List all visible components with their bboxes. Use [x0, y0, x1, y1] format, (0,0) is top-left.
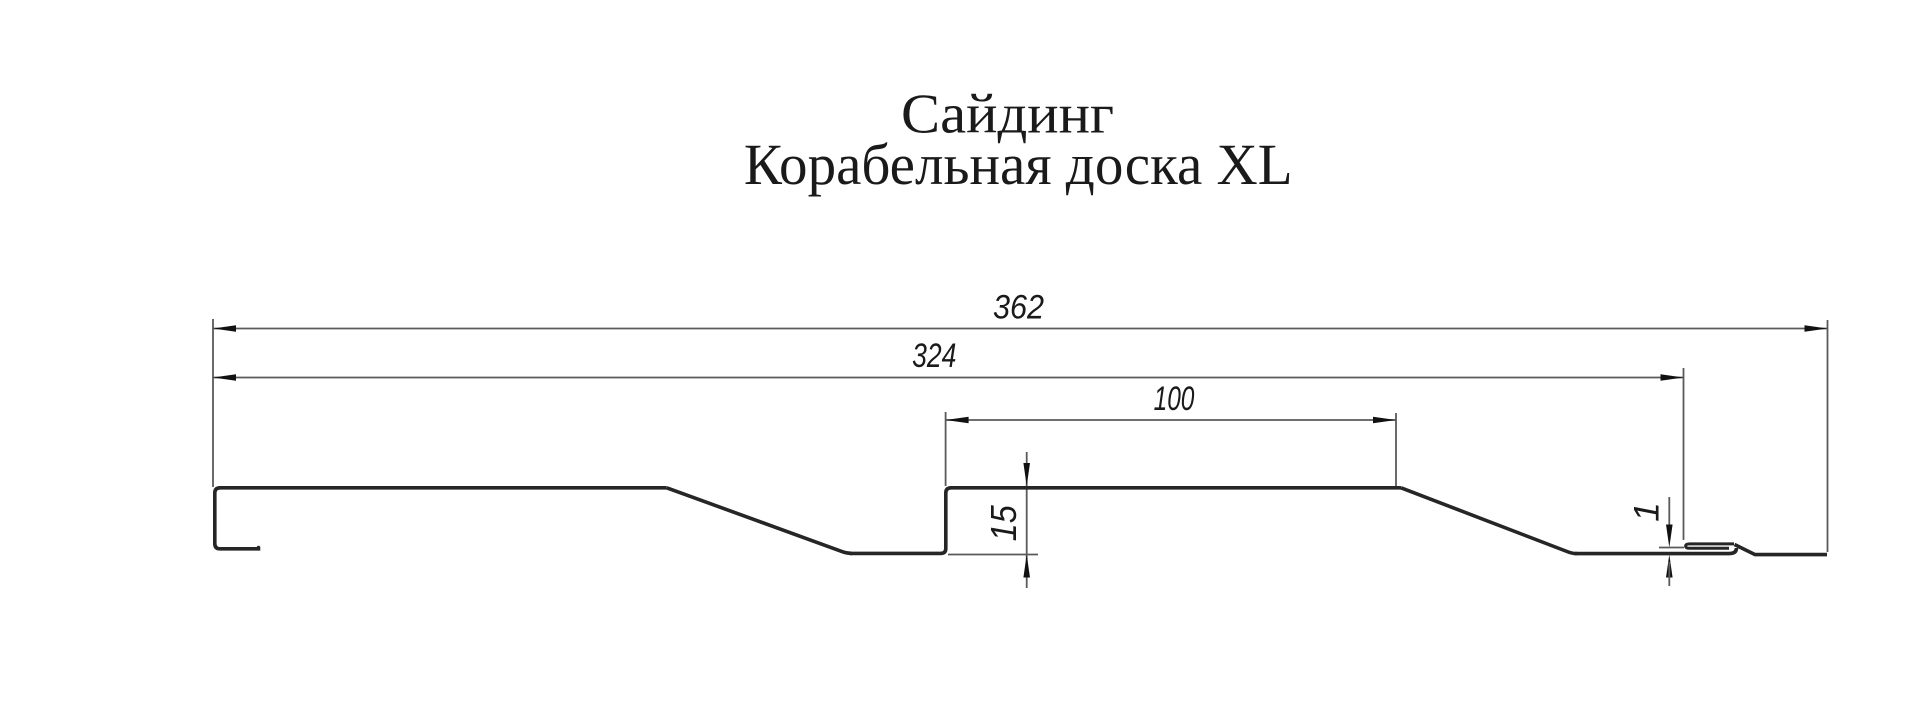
svg-text:Корабельная доска XL: Корабельная доска XL: [744, 134, 1293, 198]
svg-text:324: 324: [912, 337, 956, 375]
svg-text:15: 15: [985, 504, 1025, 541]
svg-text:100: 100: [1154, 380, 1195, 418]
svg-text:1: 1: [1628, 502, 1667, 521]
svg-text:362: 362: [993, 288, 1044, 326]
